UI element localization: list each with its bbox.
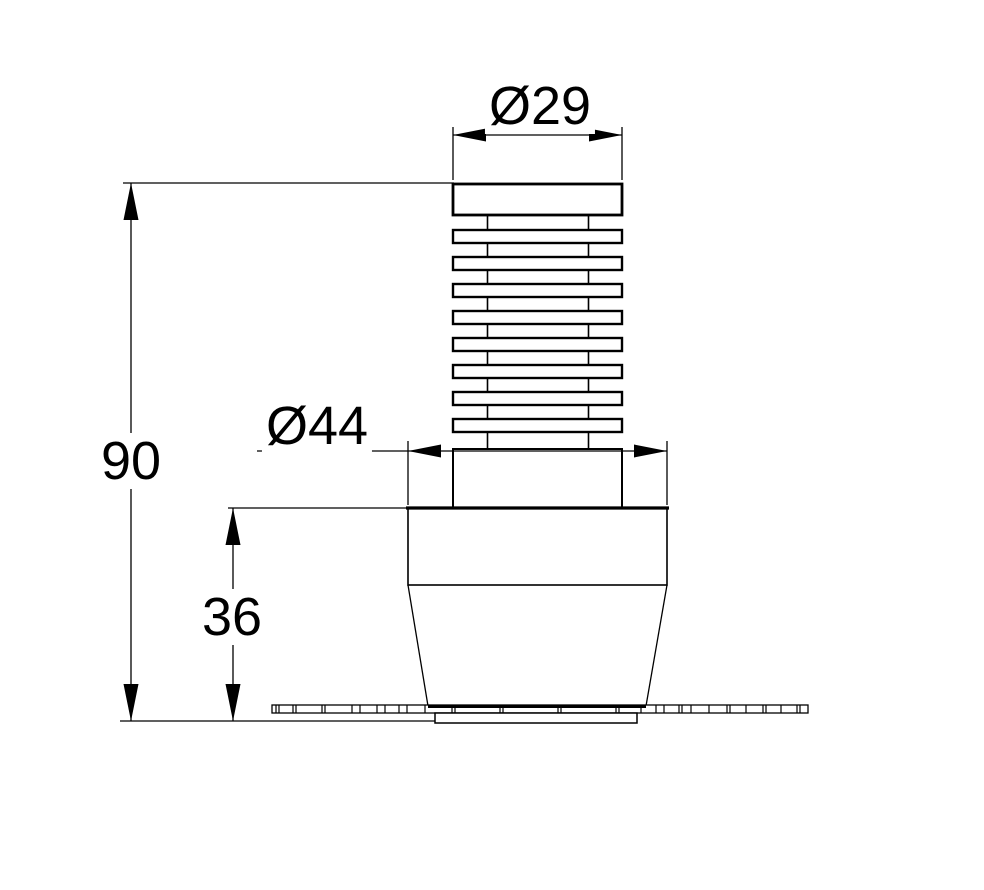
body-taper-left	[408, 585, 428, 706]
neck-collar	[453, 449, 622, 508]
cup-body	[406, 508, 669, 706]
thread-ridge	[453, 392, 622, 405]
arrowhead-down	[226, 684, 241, 721]
arrowhead-up	[124, 183, 139, 220]
threaded-stem	[453, 184, 622, 450]
body-upper-cylinder	[408, 508, 667, 585]
arrowhead-up	[226, 508, 241, 545]
thread-ridge	[453, 338, 622, 351]
neck-collar-outline	[453, 449, 622, 508]
arrowhead-left	[408, 445, 441, 458]
thread-ridge	[453, 257, 622, 270]
dim-label-lower-body-height: 36	[198, 589, 266, 645]
arrowhead-left	[453, 129, 486, 142]
base-plate	[272, 705, 808, 723]
thread-ridge	[453, 365, 622, 378]
technical-drawing-canvas: Ø29 Ø44 90 36	[0, 0, 984, 890]
arrowhead-down	[124, 684, 139, 721]
arrowhead-right	[634, 445, 667, 458]
dim-label-overall-height: 90	[97, 433, 165, 489]
thread-ridge	[453, 284, 622, 297]
thread-ridge	[453, 311, 622, 324]
dim-label-body-diameter: Ø44	[262, 398, 372, 454]
thread-ridge	[453, 419, 622, 432]
thread-ridge	[453, 230, 622, 243]
stem-top-cap	[453, 184, 622, 215]
dim-label-thread-diameter: Ø29	[485, 78, 595, 134]
body-taper-right	[646, 585, 667, 706]
bottom-pad	[435, 713, 637, 723]
